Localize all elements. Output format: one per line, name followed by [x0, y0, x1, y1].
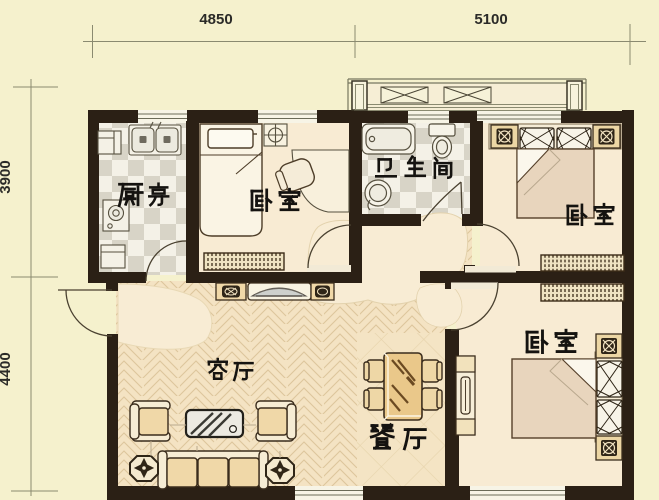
svg-text:3900: 3900: [0, 160, 14, 193]
svg-text:4400: 4400: [0, 352, 14, 385]
svg-text:4850: 4850: [199, 11, 232, 28]
svg-text:5100: 5100: [474, 11, 507, 28]
